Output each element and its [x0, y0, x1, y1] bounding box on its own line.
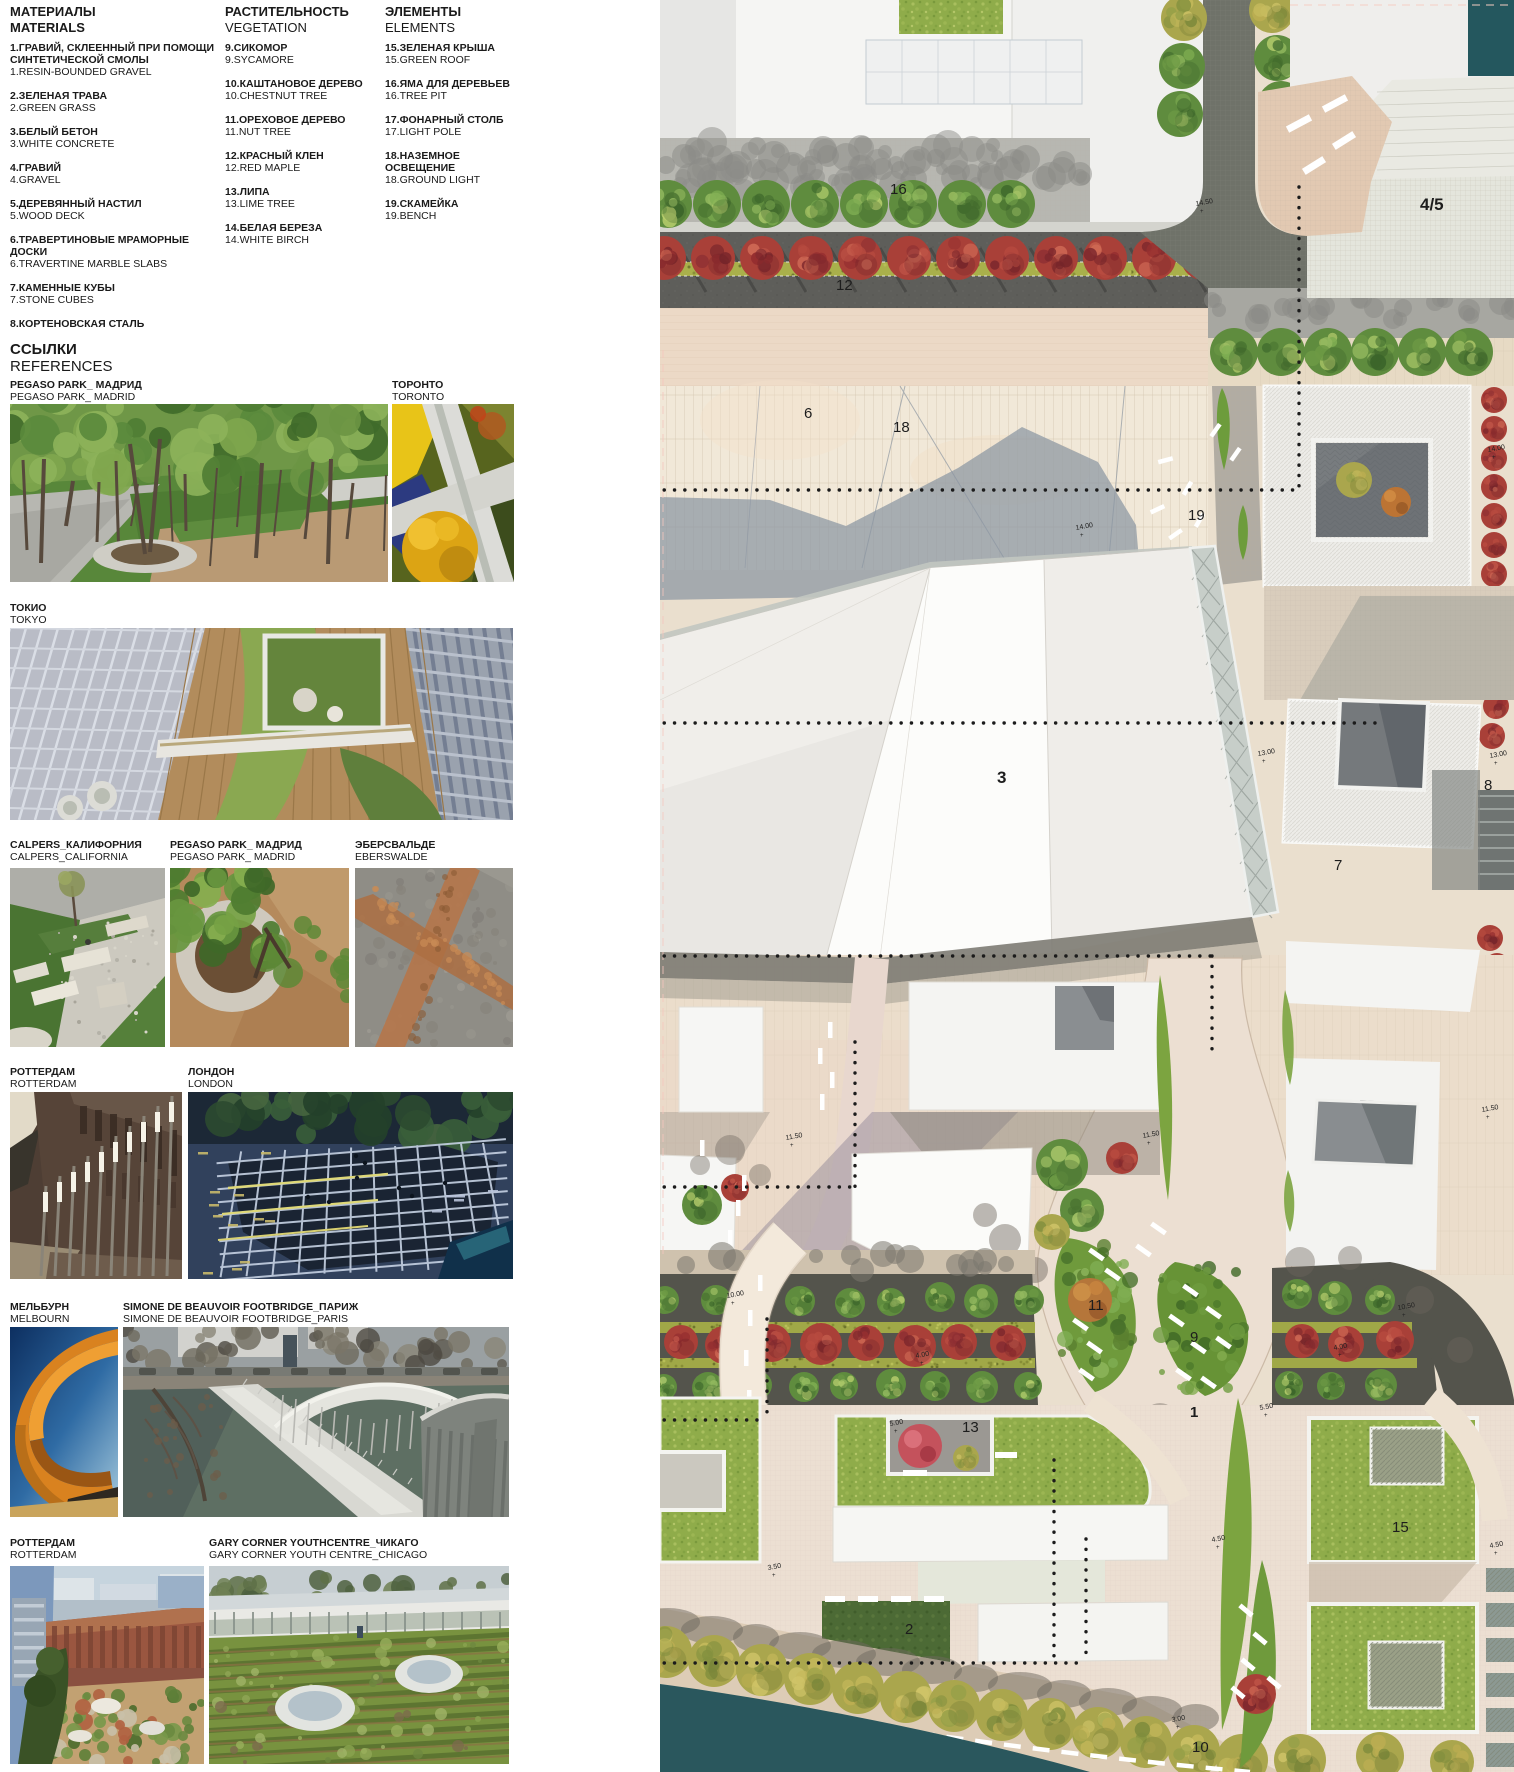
svg-text:18: 18: [893, 419, 910, 436]
svg-text:+: +: [1080, 533, 1084, 539]
svg-text:+: +: [772, 1573, 776, 1579]
svg-text:+: +: [731, 1301, 735, 1307]
svg-text:+: +: [1200, 209, 1204, 215]
svg-text:11: 11: [1088, 1297, 1104, 1314]
svg-text:+: +: [920, 1361, 924, 1367]
svg-text:+: +: [1402, 1313, 1406, 1319]
svg-text:+: +: [1494, 1551, 1498, 1557]
svg-text:16: 16: [890, 181, 907, 198]
svg-text:19: 19: [1188, 507, 1205, 524]
svg-text:+: +: [1262, 759, 1266, 765]
svg-text:12: 12: [836, 277, 853, 294]
svg-text:+: +: [894, 1429, 898, 1435]
svg-text:1: 1: [1190, 1404, 1198, 1421]
svg-text:+: +: [790, 1143, 794, 1149]
svg-text:+: +: [1494, 761, 1498, 767]
svg-text:7: 7: [1334, 857, 1342, 874]
svg-text:8: 8: [1484, 777, 1492, 794]
svg-text:9: 9: [1190, 1329, 1198, 1346]
svg-text:+: +: [1486, 1115, 1490, 1121]
svg-text:+: +: [1216, 1545, 1220, 1551]
svg-text:6: 6: [804, 405, 812, 422]
svg-text:+: +: [1338, 1353, 1342, 1359]
svg-text:+: +: [1176, 1725, 1180, 1731]
svg-text:+: +: [1264, 1413, 1268, 1419]
svg-text:15: 15: [1392, 1519, 1409, 1536]
svg-text:13: 13: [962, 1419, 979, 1436]
svg-text:4/5: 4/5: [1420, 195, 1444, 214]
svg-text:2: 2: [905, 1621, 913, 1638]
svg-text:10: 10: [1192, 1739, 1209, 1756]
svg-text:+: +: [1147, 1141, 1151, 1147]
svg-text:3: 3: [997, 768, 1006, 787]
svg-text:+: +: [1492, 455, 1496, 461]
